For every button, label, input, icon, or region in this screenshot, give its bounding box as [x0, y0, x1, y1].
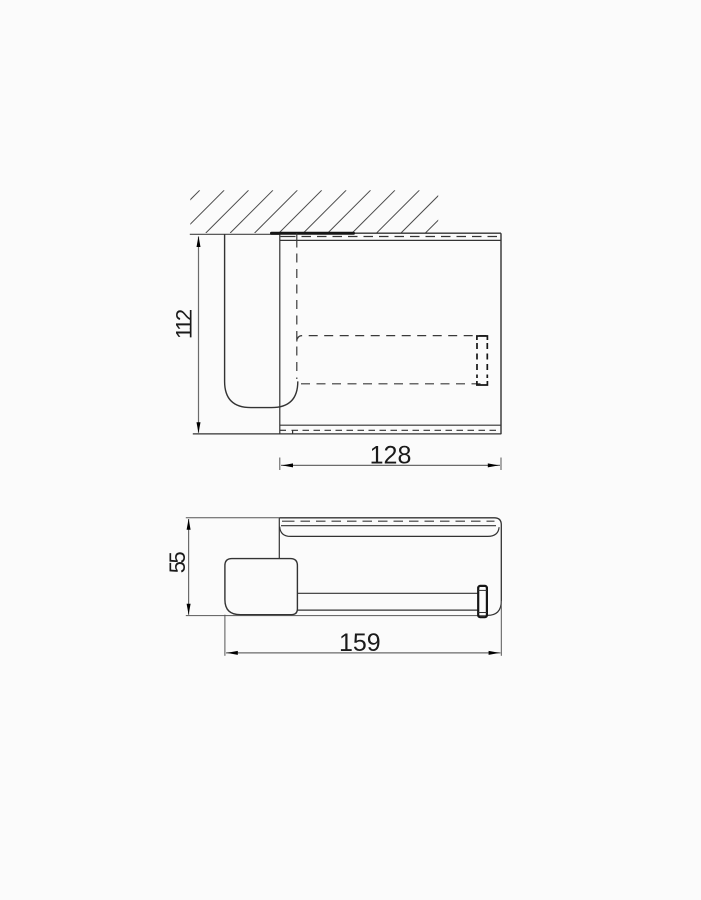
svg-text:128: 128 — [370, 441, 412, 469]
svg-text:55: 55 — [165, 552, 190, 574]
svg-text:159: 159 — [339, 629, 381, 657]
svg-text:112: 112 — [172, 309, 197, 339]
